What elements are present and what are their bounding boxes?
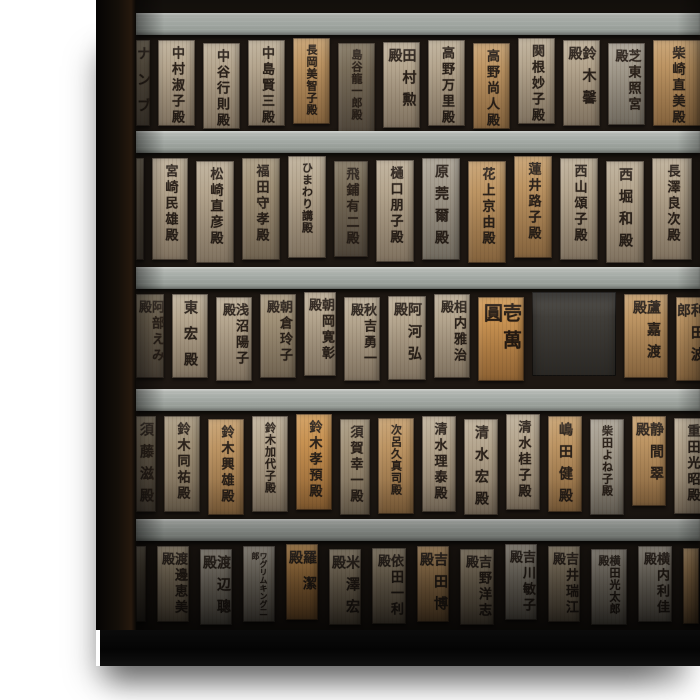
plaque-row: 宮崎民雄殿松崎直彦殿福田守孝殿ひまわり講殿飛鋪有二殿樋口朋子殿原莞爾殿花上京由殿… bbox=[136, 153, 700, 267]
wood-beam bbox=[136, 267, 700, 289]
plaque-text: 中谷行則殿 bbox=[215, 49, 228, 129]
plaque-text: 柴田よね子殿 bbox=[602, 425, 613, 497]
donor-plaque: 阿河弘殿 bbox=[388, 296, 426, 380]
plaque-text: 須藤滋殿 bbox=[139, 422, 153, 510]
donor-plaque: 吉川敏子殿 bbox=[505, 544, 537, 620]
donor-plaque: 蘆嘉渡殿 bbox=[624, 294, 668, 378]
donor-plaque: 米澤宏殿 bbox=[329, 549, 361, 625]
donor-plaque: 渡辺聰殿 bbox=[200, 549, 232, 625]
plaque-text: 浅沼陽子殿 bbox=[221, 303, 247, 381]
donor-plaque: 原莞爾殿 bbox=[422, 158, 460, 260]
plaque-text: 清水桂子殿 bbox=[517, 420, 530, 500]
plaque-text: 蘆嘉渡殿 bbox=[632, 300, 660, 378]
plaque-text: 長澤良次殿 bbox=[666, 164, 679, 244]
donor-plaque: 秋吉勇一殿 bbox=[344, 297, 380, 381]
plaque-text: 須賀幸一殿 bbox=[349, 425, 362, 505]
donor-plaque: 横内利佳殿 bbox=[638, 546, 672, 622]
plaque-text: 芝東照宮殿 bbox=[614, 49, 640, 125]
plaque-text: 島谷龍一郎殿 bbox=[351, 49, 362, 121]
plaque-text: 朝岡寛彰殿 bbox=[307, 298, 333, 376]
donor-plaque: 鈴木孝預殿 bbox=[296, 414, 332, 510]
donor-plaque: 依田一利殿 bbox=[372, 548, 406, 624]
plaque-text: 柴崎直美殿 bbox=[671, 46, 684, 126]
plaque-text: 鈴木興雄殿 bbox=[220, 425, 233, 505]
plaque-text: 吉野洋志殿 bbox=[464, 555, 490, 625]
plaque-text: 中村淑子殿 bbox=[170, 46, 183, 126]
plaque-row: 渡邊恵美殿渡辺聰殿ワグリムキング二郎羅潔殿米澤宏殿依田一利殿吉田博殿吉野洋志殿吉… bbox=[136, 541, 700, 627]
donor-plaque: 中村淑子殿 bbox=[158, 40, 195, 126]
plaque-text: 阿河弘殿 bbox=[393, 302, 421, 380]
donor-plaque: ひまわり講殿 bbox=[288, 156, 326, 258]
donor-plaque: 長岡美智子殿 bbox=[293, 38, 330, 124]
plaque-text: 宮崎民雄殿 bbox=[164, 164, 177, 244]
wood-beam bbox=[136, 131, 700, 153]
plaque-text: 飛鋪有二殿 bbox=[345, 167, 358, 247]
plaque-text: 鈴木同祐殿 bbox=[176, 422, 189, 502]
partial-plaque: 阿部えみ殿 bbox=[136, 294, 164, 378]
canvas-side-edge bbox=[96, 0, 136, 630]
donor-plaque: 清水宏殿 bbox=[464, 419, 498, 515]
donor-plaque: 高野尚人殿 bbox=[473, 43, 510, 129]
plaque-text: 朝倉玲子殿 bbox=[265, 300, 291, 378]
donor-plaque: 松崎直彦殿 bbox=[196, 161, 234, 263]
wall-top-gap bbox=[136, 0, 700, 13]
donor-plaque: 中谷行則殿 bbox=[203, 43, 240, 129]
donor-plaque: 次呂久真司殿 bbox=[378, 418, 414, 514]
empty-slate-panel bbox=[532, 292, 616, 376]
plaque-text: 花上京由殿 bbox=[481, 167, 494, 247]
donor-plaque: 高野万里殿 bbox=[428, 40, 465, 126]
donor-plaque: 長澤良次殿 bbox=[652, 158, 692, 260]
plaque-text: 米澤宏殿 bbox=[331, 555, 359, 625]
donor-plaque: 田村勲殿 bbox=[383, 42, 420, 128]
donor-plaque: 柴田よね子殿 bbox=[590, 419, 624, 515]
donor-plaque: 鈴木同祐殿 bbox=[164, 416, 200, 512]
canvas-print: ナンブ中村淑子殿中谷行則殿中島賢三殿長岡美智子殿島谷龍一郎殿田村勲殿高野万里殿高… bbox=[96, 0, 700, 666]
plaque-text: 田村勲殿 bbox=[388, 48, 416, 128]
plaque-text: 吉川敏子殿 bbox=[508, 550, 534, 620]
partial-plaque bbox=[136, 546, 146, 622]
plaque-text: 利田波郎 bbox=[676, 303, 700, 381]
plaque-text: 清水宏殿 bbox=[474, 425, 488, 513]
plaque-text: 鈴木馨殿 bbox=[568, 46, 596, 126]
partial-plaque bbox=[136, 158, 144, 260]
donor-plaque: 清水桂子殿 bbox=[506, 414, 540, 510]
plaque-text: 中島賢三殿 bbox=[260, 46, 273, 126]
plaque-text: 鈴木孝預殿 bbox=[308, 420, 321, 500]
donor-plaque: 樋口朋子殿 bbox=[376, 160, 414, 262]
donor-plaque: 東宏殿 bbox=[172, 294, 208, 378]
donor-plaque: 静間翠殿 bbox=[632, 416, 666, 506]
donor-plaque: 須賀幸一殿 bbox=[340, 419, 370, 515]
donor-plaque: 宮崎民雄殿 bbox=[152, 158, 188, 260]
donor-plaque: 鈴木興雄殿 bbox=[208, 419, 244, 515]
donor-plaque: 西山頌子殿 bbox=[560, 158, 598, 260]
partial-plaque: ナンブ bbox=[136, 40, 150, 126]
plaque-text: 鈴木加代子殿 bbox=[265, 422, 276, 494]
plaque-text: 相内雅治殿 bbox=[439, 300, 465, 378]
donor-plaque: 重田光昭殿 bbox=[674, 418, 700, 514]
donor-plaque: 福田守孝殿 bbox=[242, 158, 280, 260]
plaque-text: 清水理泰殿 bbox=[433, 422, 446, 502]
plaque-text: 東宏殿 bbox=[183, 300, 197, 378]
plaque-text: 渡邊恵美殿 bbox=[160, 552, 186, 622]
plaque-text: 長岡美智子殿 bbox=[306, 44, 317, 116]
donor-plaque: 飛鋪有二殿 bbox=[334, 161, 368, 257]
plaque-row: 須藤滋殿鈴木同祐殿鈴木興雄殿鈴木加代子殿鈴木孝預殿須賀幸一殿次呂久真司殿清水理泰… bbox=[136, 411, 700, 519]
product-photo-scene: ナンブ中村淑子殿中谷行則殿中島賢三殿長岡美智子殿島谷龍一郎殿田村勲殿高野万里殿高… bbox=[0, 0, 700, 700]
donor-plaque: 鈴木馨殿 bbox=[563, 40, 600, 126]
plaque-text: ひまわり講殿 bbox=[302, 162, 313, 234]
plaque-text: 吉井瑞江殿 bbox=[551, 552, 577, 622]
donor-plaque: 島谷龍一郎殿 bbox=[338, 43, 375, 133]
donor-plaque: 吉井瑞江殿 bbox=[548, 546, 580, 622]
donor-plaque: 羅潔殿 bbox=[286, 544, 318, 620]
partial-plaque: 須藤滋殿 bbox=[136, 416, 156, 512]
price-plaque: 壱萬圓 bbox=[478, 297, 524, 381]
partial-plaque: 利田波郎 bbox=[676, 297, 700, 381]
donor-plaque: 清水理泰殿 bbox=[422, 416, 456, 512]
donor-plaque: 西堀和殿 bbox=[606, 161, 644, 263]
plaque-text: ワグリムキング二郎 bbox=[251, 552, 267, 622]
donor-plaque: 中島賢三殿 bbox=[248, 40, 285, 126]
plaque-text: 関根妙子殿 bbox=[530, 44, 543, 124]
plaque-text: 羅潔殿 bbox=[288, 550, 316, 620]
donor-plaque: 芝東照宮殿 bbox=[608, 43, 645, 125]
partial-plaque bbox=[683, 548, 699, 624]
donor-plaque: 関根妙子殿 bbox=[518, 38, 555, 124]
plaque-wall-photo: ナンブ中村淑子殿中谷行則殿中島賢三殿長岡美智子殿島谷龍一郎殿田村勲殿高野万里殿高… bbox=[136, 0, 700, 630]
plaque-text: 高野万里殿 bbox=[440, 46, 453, 126]
donor-plaque: 吉野洋志殿 bbox=[460, 549, 494, 625]
donor-plaque: 浅沼陽子殿 bbox=[216, 297, 252, 381]
plaque-text: 渡辺聰殿 bbox=[202, 555, 230, 625]
plaque-text: 蓮井路子殿 bbox=[527, 162, 540, 242]
plaque-text: 依田一利殿 bbox=[376, 554, 402, 624]
wood-beam bbox=[136, 13, 700, 35]
plaque-text: 吉田博殿 bbox=[419, 552, 447, 622]
plaque-text: 次呂久真司殿 bbox=[391, 424, 402, 496]
donor-plaque: 鈴木加代子殿 bbox=[252, 416, 288, 512]
plaque-text: 西山頌子殿 bbox=[573, 164, 586, 244]
donor-plaque: 朝岡寛彰殿 bbox=[304, 292, 336, 376]
wood-beam bbox=[136, 389, 700, 411]
donor-plaque: 嶋田健殿 bbox=[548, 416, 582, 512]
plaque-text: 静間翠殿 bbox=[635, 422, 663, 506]
donor-plaque: 花上京由殿 bbox=[468, 161, 506, 263]
canvas-bottom-edge bbox=[100, 630, 700, 666]
plaque-text: 秋吉勇一殿 bbox=[349, 303, 375, 381]
plaque-text: 重田光昭殿 bbox=[686, 424, 699, 504]
plaque-text: 原莞爾殿 bbox=[434, 164, 448, 252]
plaque-text: ナンブ bbox=[136, 46, 150, 124]
plaque-text: 嶋田健殿 bbox=[558, 422, 572, 510]
plaque-text: 松崎直彦殿 bbox=[209, 167, 222, 247]
plaque-text: 福田守孝殿 bbox=[255, 164, 268, 244]
donor-plaque: 吉田博殿 bbox=[417, 546, 449, 622]
partial-plaque: 柴崎直美殿 bbox=[653, 40, 700, 126]
plaque-text: 高野尚人殿 bbox=[485, 49, 498, 129]
donor-plaque: 相内雅治殿 bbox=[434, 294, 470, 378]
donor-plaque: ワグリムキング二郎 bbox=[243, 546, 275, 622]
donor-plaque: 朝倉玲子殿 bbox=[260, 294, 296, 378]
plaque-text: 樋口朋子殿 bbox=[389, 166, 402, 246]
donor-plaque: 蓮井路子殿 bbox=[514, 156, 552, 258]
wood-beam bbox=[136, 519, 700, 541]
donor-plaque: 横田光太郎殿 bbox=[591, 549, 627, 625]
plaque-row: 阿部えみ殿東宏殿浅沼陽子殿朝倉玲子殿朝岡寛彰殿秋吉勇一殿阿河弘殿相内雅治殿壱萬圓… bbox=[136, 289, 700, 389]
plaque-text: 横田光太郎殿 bbox=[598, 555, 620, 625]
plaque-text: 横内利佳殿 bbox=[642, 552, 668, 622]
plaque-row: ナンブ中村淑子殿中谷行則殿中島賢三殿長岡美智子殿島谷龍一郎殿田村勲殿高野万里殿高… bbox=[136, 35, 700, 131]
plaque-text: 壱萬圓 bbox=[482, 303, 520, 381]
plaque-text: 阿部えみ殿 bbox=[137, 300, 163, 378]
donor-plaque: 渡邊恵美殿 bbox=[157, 546, 189, 622]
plaque-text: 西堀和殿 bbox=[618, 167, 632, 255]
